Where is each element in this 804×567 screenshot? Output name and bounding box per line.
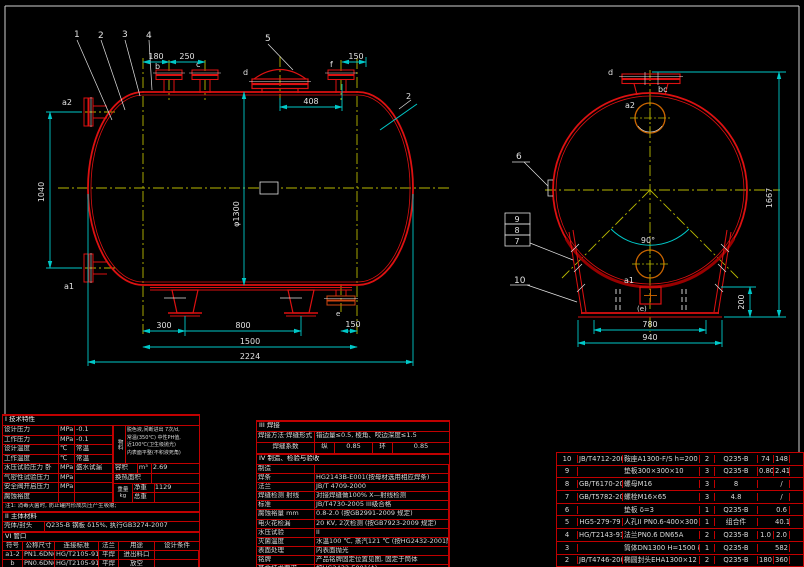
tech-note: 注1: 消毒灭菌时, 防止罐内形成负压产生吸瘪; [3, 503, 199, 512]
table-row: 安全阀开启压力MPa [3, 483, 113, 493]
table-row: 腐蚀裕度 [3, 493, 113, 503]
table-cell: 180 [758, 556, 774, 564]
table-cell: Q235-B [715, 506, 758, 514]
table-cell: 铭牌 [257, 556, 315, 564]
side-label-e: (e) [637, 305, 647, 313]
material-line: 脱色液,间断进出 7次/d, [127, 427, 198, 435]
body-material-value: Q235-B 钢板 δ15%, 执行GB3274-2007 [45, 522, 199, 531]
table-cell [75, 474, 113, 483]
nozzle-header-cell: 设计条件 [155, 542, 199, 550]
table-cell: 2 [700, 531, 715, 539]
table-cell: 螺栓M16×65 [623, 493, 700, 501]
table-cell: ℃ [59, 445, 75, 454]
part-label-1: 1 [74, 30, 80, 40]
table-cell: -0.1 [75, 426, 113, 435]
table-row: 工作压力MPa-0.1 [3, 436, 113, 446]
table-cell: 螺母M16 [623, 480, 700, 488]
table-cell: 3 [700, 480, 715, 488]
tank-shell [88, 92, 413, 290]
table-row: 铭牌产品铭牌固定位置见图, 固定于筒体 [257, 556, 449, 565]
table-cell: 产品铭牌固定位置见图, 固定于筒体 [315, 556, 449, 564]
nozzle-label-c: c [196, 60, 200, 69]
table-row: 设计温度℃常温 [3, 445, 113, 455]
fabrication-rows: 制造焊条HG2143B-E001(按母材选用相应焊条)法兰JB/T 4709-2… [257, 465, 449, 567]
nozzle-label-a1: a1 [64, 282, 74, 291]
table-cell: 气密性试验压力 [3, 474, 59, 483]
dim-phi1300: φ1300 [232, 201, 241, 227]
table-cell: 0.6 [774, 506, 790, 514]
table-cell: 人孔II PN0.6-400×300 [623, 518, 700, 526]
table-cell: 筒体DN1300 H=1500 δ=12 [623, 544, 700, 552]
table-cell [59, 493, 75, 503]
table-row: 表面处理内表面抛光 [257, 547, 449, 556]
table-row: 水压试验II [257, 529, 449, 538]
table-cell: MPa [59, 474, 75, 483]
nozzle-header-cell: 用途 [119, 542, 155, 550]
table-cell: 8 [715, 480, 758, 488]
dim-150-top: 150 [348, 52, 363, 61]
table-cell: 椭圆封头EHA1300×12 [623, 556, 700, 564]
dim-1500: 1500 [240, 337, 260, 346]
coef-circ-value: 0.85 [393, 443, 449, 453]
table-cell: 腐蚀裕量 mm [257, 510, 315, 518]
table-cell: MPa [59, 436, 75, 445]
dim-2224: 2224 [240, 352, 260, 361]
tech-spec-table: I 技术特性 设计压力MPa-0.1工作压力MPa-0.1设计温度℃常温工作温度… [2, 414, 200, 567]
table-cell: 水温100 ℃, 蒸汽121 ℃ (按HG2432-2001附录规定) [315, 538, 449, 546]
part-label-7: 7 [514, 237, 519, 246]
dim-150-bottom: 150 [345, 320, 360, 329]
tech-table-body: 设计压力MPa-0.1工作压力MPa-0.1设计温度℃常温工作温度℃常温水压试验… [3, 426, 199, 503]
manufacture-section-title: IV 制造、检验与验收 [257, 454, 449, 465]
callout-10: 10 [510, 276, 577, 302]
table-cell: 4.8 [715, 493, 758, 501]
table-cell: -0.1 [75, 436, 113, 445]
table-cell: 148 [774, 455, 790, 463]
center-tag-box [260, 182, 278, 194]
table-cell: 进出料口 [119, 551, 155, 559]
part-label-4: 4 [146, 31, 152, 41]
table-cell: 1 [700, 506, 715, 514]
bom-rows: 10JB/T4712-2007鞍座A1300-F/S h=2002Q235-B7… [557, 453, 803, 567]
table-row: 制造 [257, 465, 449, 474]
table-row: 法兰JB/T 4709-2000 [257, 483, 449, 492]
table-cell: Q235-B [715, 467, 758, 475]
table-cell: 8 [557, 480, 578, 488]
table-cell: HG5-279-79 [578, 518, 623, 526]
nozzle-a2-end [630, 98, 670, 138]
table-cell: 平焊 [99, 560, 119, 567]
table-cell: 360 [774, 556, 790, 564]
table-cell: 2 [700, 556, 715, 564]
centerlines [58, 56, 452, 334]
part-label-2: 2 [98, 31, 104, 41]
table-row: 4HG/T2143-91法兰PN0.6 DN65A2Q235-B1.02.0 [557, 529, 803, 542]
table-row: 水压试验压力 卧MPa盛水试漏 [3, 464, 113, 474]
table-cell: MPa [59, 483, 75, 492]
nozzle-header-cell: 法兰 [99, 542, 119, 550]
table-cell: PN1.6DN65 [23, 551, 55, 559]
table-cell: 工作温度 [3, 455, 59, 464]
table-row: 灭菌温度水温100 ℃, 蒸汽121 ℃ (按HG2432-2001附录规定) [257, 538, 449, 547]
table-cell: 4 [557, 531, 578, 539]
table-row: 8GB/T6170-2000螺母M1638/ [557, 478, 803, 491]
nozzle-header-cell: 连接标准 [55, 542, 99, 550]
table-cell: 常温 [75, 445, 113, 454]
table-row: 5HG5-279-79人孔II PN0.6-400×3001组合件40.1 [557, 516, 803, 529]
material-line: 常温(350℃) 中性PH值, [127, 435, 198, 443]
table-cell: HG/T2143-91 [578, 531, 623, 539]
table-cell: 6 [557, 506, 578, 514]
table-row: 10JB/T4712-2007鞍座A1300-F/S h=2002Q235-B7… [557, 453, 803, 466]
welding-value: 错边量≤0.5, 棱角、咬边深度≤1.5 [315, 432, 449, 442]
weight-label: 重量 kg [114, 484, 133, 502]
table-cell: 组合件 [715, 518, 758, 526]
table-cell: 水压试验压力 卧 [3, 464, 59, 473]
part-label-10: 10 [514, 276, 526, 286]
table-cell: 1 [700, 518, 715, 526]
table-cell: 9 [557, 467, 578, 475]
volume-label: 容积 [114, 464, 138, 473]
table-cell: 0.80 [758, 467, 774, 475]
table-cell: 电火花检漏 [257, 520, 315, 528]
cad-drawing-canvas: 1 2 3 4 5 b c d f a2 a1 e 2 [0, 0, 804, 567]
tech-param-rows: 设计压力MPa-0.1工作压力MPa-0.1设计温度℃常温工作温度℃常温水压试验… [3, 426, 113, 502]
table-cell: 焊缝检测 射线 [257, 492, 315, 500]
table-cell: GB/T5782-2000 [578, 493, 623, 501]
dim-300: 300 [156, 321, 171, 330]
table-cell: / [774, 480, 790, 488]
dim-250: 250 [179, 52, 194, 61]
coef-circ-label: 环 [373, 443, 393, 453]
side-label-a2: a2 [625, 101, 635, 110]
table-cell: 对接焊缝做100% X—射线检测 [315, 492, 449, 500]
volume-unit: m³ [138, 464, 152, 473]
total-weight-value [155, 493, 199, 502]
dim-200: 200 [737, 294, 746, 309]
area-label: 换热面积 [114, 474, 152, 483]
table-cell: 法兰PN0.6 DN65A [623, 531, 700, 539]
coef-long-value: 0.85 [335, 443, 373, 453]
dim-940: 940 [642, 333, 657, 342]
table-cell: 灭菌温度 [257, 538, 315, 546]
table-row: 气密性试验压力MPa [3, 474, 113, 484]
table-cell: MPa [59, 464, 75, 473]
table-cell: Q235-B [715, 544, 758, 552]
table-cell: GB/T6170-2000 [578, 480, 623, 488]
table-cell: 安全阀开启压力 [3, 483, 59, 492]
table-row: 设计压力MPa-0.1 [3, 426, 113, 436]
dim-780: 780 [642, 320, 657, 329]
body-material-label: 壳体/封头 [3, 522, 45, 531]
weld-callout-text: 2 [406, 92, 411, 101]
table-cell: 水压试验 [257, 529, 315, 537]
table-cell: 3 [557, 544, 578, 552]
fabrication-table: III 焊接 焊接方法·焊缝形式 mm 错边量≤0.5, 棱角、咬边深度≤1.5… [256, 420, 450, 567]
side-label-a1: a1 [624, 276, 634, 285]
table-cell: 设计压力 [3, 426, 59, 435]
welding-section-title: III 焊接 [257, 421, 449, 432]
table-cell [75, 483, 113, 492]
table-cell: 2 [557, 556, 578, 564]
bom-table: 10JB/T4712-2007鞍座A1300-F/S h=2002Q235-B7… [556, 452, 804, 567]
table-cell: 7 [557, 493, 578, 501]
table-cell: JB/T4712-2007 [578, 455, 623, 463]
table-cell: 放空 [119, 560, 155, 567]
material-line: 近100℃(卫生级抛光) [127, 442, 198, 450]
callout-6: 6 [512, 152, 553, 196]
volume-value: 2.69 [152, 464, 199, 473]
area-value [152, 474, 199, 483]
table-row: bPN0.6DN65HG/T2105-91平焊放空 [3, 560, 199, 567]
nozzle-label-f: f [330, 60, 333, 69]
part-label-8: 8 [514, 226, 519, 235]
dim-180: 180 [148, 52, 163, 61]
table-cell: 20 KV, 2次检测 (按GB7923-2009 规定) [315, 520, 449, 528]
material-line: 内表面平整(不积液死角) [127, 450, 198, 458]
table-row: 标准JB/T4730-2005 III级合格 [257, 501, 449, 510]
table-cell: 垫板300×300×10 [623, 467, 700, 475]
part-label-9: 9 [514, 215, 519, 224]
table-row: 腐蚀裕量 mm0.8-2.0 (按GB2991-2009 规定) [257, 510, 449, 519]
body-material-row: 壳体/封头 Q235-B 钢板 δ15%, 执行GB3274-2007 [3, 522, 199, 532]
table-cell: 焊条 [257, 474, 315, 482]
table-cell: 盛水试漏 [75, 464, 113, 473]
table-cell: JB/T 4709-2000 [315, 483, 449, 491]
table-row: 7GB/T5782-2000螺栓M16×6534.8/ [557, 491, 803, 504]
table-cell: b [3, 560, 23, 567]
table-cell: Q235-B [715, 556, 758, 564]
table-cell: 40.1 [774, 518, 790, 526]
table-cell: 1 [700, 544, 715, 552]
saddle-bolt-lines [616, 289, 686, 313]
table-cell: / [774, 493, 790, 501]
table-cell: 内表面抛光 [315, 547, 449, 555]
table-cell: 10 [557, 455, 578, 463]
table-cell: 工作压力 [3, 436, 59, 445]
angle-label-90: 90° [641, 236, 655, 245]
table-cell: 常温 [75, 455, 113, 464]
part-label-6: 6 [516, 152, 522, 162]
material-description: 脱色液,间断进出 7次/d, 常温(350℃) 中性PH值, 近100℃(卫生级… [126, 426, 199, 463]
table-cell: 5 [557, 518, 578, 526]
drain-cross [644, 289, 657, 302]
nozzle-label-d: d [243, 68, 248, 77]
table-cell: HG/T2105-91 [55, 551, 99, 559]
table-cell: 法兰 [257, 483, 315, 491]
table-cell: 平焊 [99, 551, 119, 559]
table-row: 焊缝检测 射线对接焊缝做100% X—射线检测 [257, 492, 449, 501]
weight-block: 重量 kg 净重 1129 总重 [114, 484, 199, 502]
table-cell: 表面处理 [257, 547, 315, 555]
dim-1040: 1040 [37, 182, 46, 202]
table-cell: 3 [700, 467, 715, 475]
welding-label: 焊接方法·焊缝形式 mm [257, 432, 315, 442]
volume-row: 容积 m³ 2.69 [114, 464, 199, 474]
table-cell: HG2143B-E001(按母材选用相应焊条) [315, 474, 449, 482]
nozzle-table-rows: a1-2PN1.6DN65HG/T2105-91平焊进出料口bPN0.6DN65… [3, 551, 199, 567]
nozzle-header-cell: 公称尺寸 [23, 542, 55, 550]
table-cell: 582 [774, 544, 790, 552]
nozzle-header-cell: 符号 [3, 542, 23, 550]
table-cell: 鞍座A1300-F/S h=200 [623, 455, 700, 463]
table-cell: 1.0 [758, 531, 774, 539]
table-cell: 垫板 δ=3 [623, 506, 700, 514]
nozzle-a1-end [632, 246, 668, 282]
dim-1667: 1667 [765, 188, 774, 208]
table-row: 3筒体DN1300 H=1500 δ=121Q235-B582 [557, 542, 803, 555]
table-cell: 3 [700, 493, 715, 501]
table-cell: MPa [59, 426, 75, 435]
coef-long-label: 纵 [315, 443, 335, 453]
table-row: a1-2PN1.6DN65HG/T2105-91平焊进出料口 [3, 551, 199, 560]
manhole-side [619, 72, 683, 95]
total-weight-row: 总重 [133, 493, 199, 502]
nozzle-label-b: b [155, 62, 160, 71]
table-cell: 设计温度 [3, 445, 59, 454]
net-weight-value: 1129 [155, 484, 199, 492]
table-row: 2JB/T4746-2002椭圆封头EHA1300×122Q235-B18036… [557, 555, 803, 567]
table-cell: JB/T4730-2005 III级合格 [315, 501, 449, 509]
table-cell: Q235-B [715, 531, 758, 539]
side-label-d: d [608, 68, 613, 77]
table-cell [155, 551, 199, 559]
material-section-title: II 主体材料 [3, 512, 199, 522]
table-cell [75, 493, 113, 503]
coef-label: 焊缝系数 [257, 443, 315, 453]
table-cell: 2 [700, 455, 715, 463]
front-view: 1 2 3 4 5 b c d f a2 a1 e 2 [37, 30, 452, 366]
table-cell: 腐蚀裕度 [3, 493, 59, 503]
material-label: 物料 [114, 426, 126, 463]
table-cell: 制造 [257, 465, 315, 473]
table-cell: 2.0 [774, 531, 790, 539]
table-cell: Q235-B [715, 455, 758, 463]
table-row: 电火花检漏20 KV, 2次检测 (按GB7923-2009 规定) [257, 520, 449, 529]
table-cell: ℃ [59, 455, 75, 464]
tech-right-block: 物料 脱色液,间断进出 7次/d, 常温(350℃) 中性PH值, 近100℃(… [113, 426, 199, 502]
side-view: 90° d bc a2 a1 [505, 68, 786, 347]
table-cell: a1-2 [3, 551, 23, 559]
table-row: 焊条HG2143B-E001(按母材选用相应焊条) [257, 474, 449, 483]
side-label-bc: bc [658, 85, 667, 94]
table-cell: HG/T2105-91 [55, 560, 99, 567]
table-row: 工作温度℃常温 [3, 455, 113, 465]
table-cell [315, 465, 449, 473]
table-cell: 74 [758, 455, 774, 463]
table-row: 9垫板300×300×103Q235-B0.802.41 [557, 466, 803, 479]
table-cell: JB/T4746-2002 [578, 556, 623, 564]
table-cell: 0.8-2.0 (按GB2991-2009 规定) [315, 510, 449, 518]
table-cell: PN0.6DN65 [23, 560, 55, 567]
table-row: 6垫板 δ=31Q235-B0.6 [557, 504, 803, 517]
total-weight-label: 总重 [133, 493, 155, 502]
material-block: 物料 脱色液,间断进出 7次/d, 常温(350℃) 中性PH值, 近100℃(… [114, 426, 199, 464]
table-cell: II [315, 529, 449, 537]
part-label-5: 5 [265, 34, 271, 44]
nozzle-label-a2: a2 [62, 98, 72, 107]
dim-800: 800 [235, 321, 250, 330]
weld-coefficient-row: 焊缝系数 纵 0.85 环 0.85 [257, 443, 449, 454]
net-weight-row: 净重 1129 [133, 484, 199, 493]
table-cell [155, 560, 199, 567]
table-cell: 2.41 [774, 467, 790, 475]
part-label-3: 3 [122, 30, 128, 40]
dim-408: 408 [303, 97, 318, 106]
nozzle-table-header: 符号 公称尺寸 连接标准 法兰 用途 设计条件 [3, 542, 199, 551]
nozzle-label-e: e [336, 310, 340, 318]
saddle-legs [168, 290, 318, 316]
net-weight-label: 净重 [133, 484, 155, 492]
tech-table-title: I 技术特性 [3, 415, 199, 426]
table-cell: 标准 [257, 501, 315, 509]
